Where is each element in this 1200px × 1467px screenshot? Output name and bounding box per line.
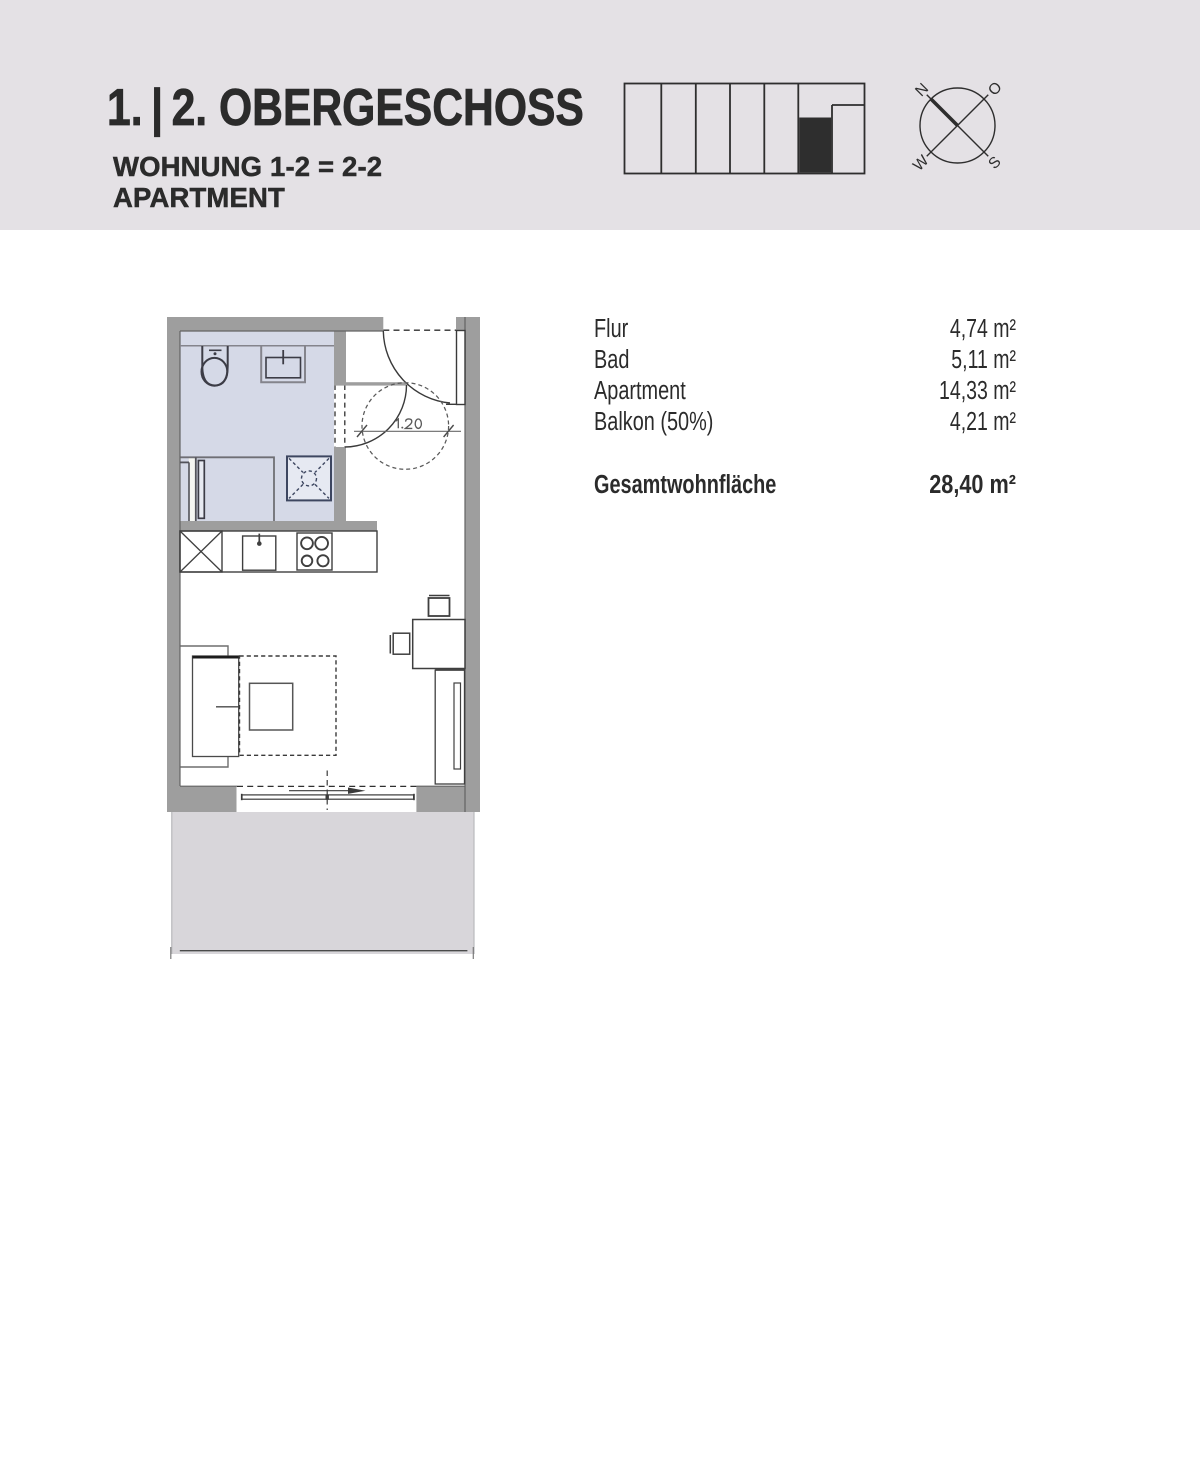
svg-text:O: O [985,79,1006,100]
svg-text:W: W [910,152,933,175]
